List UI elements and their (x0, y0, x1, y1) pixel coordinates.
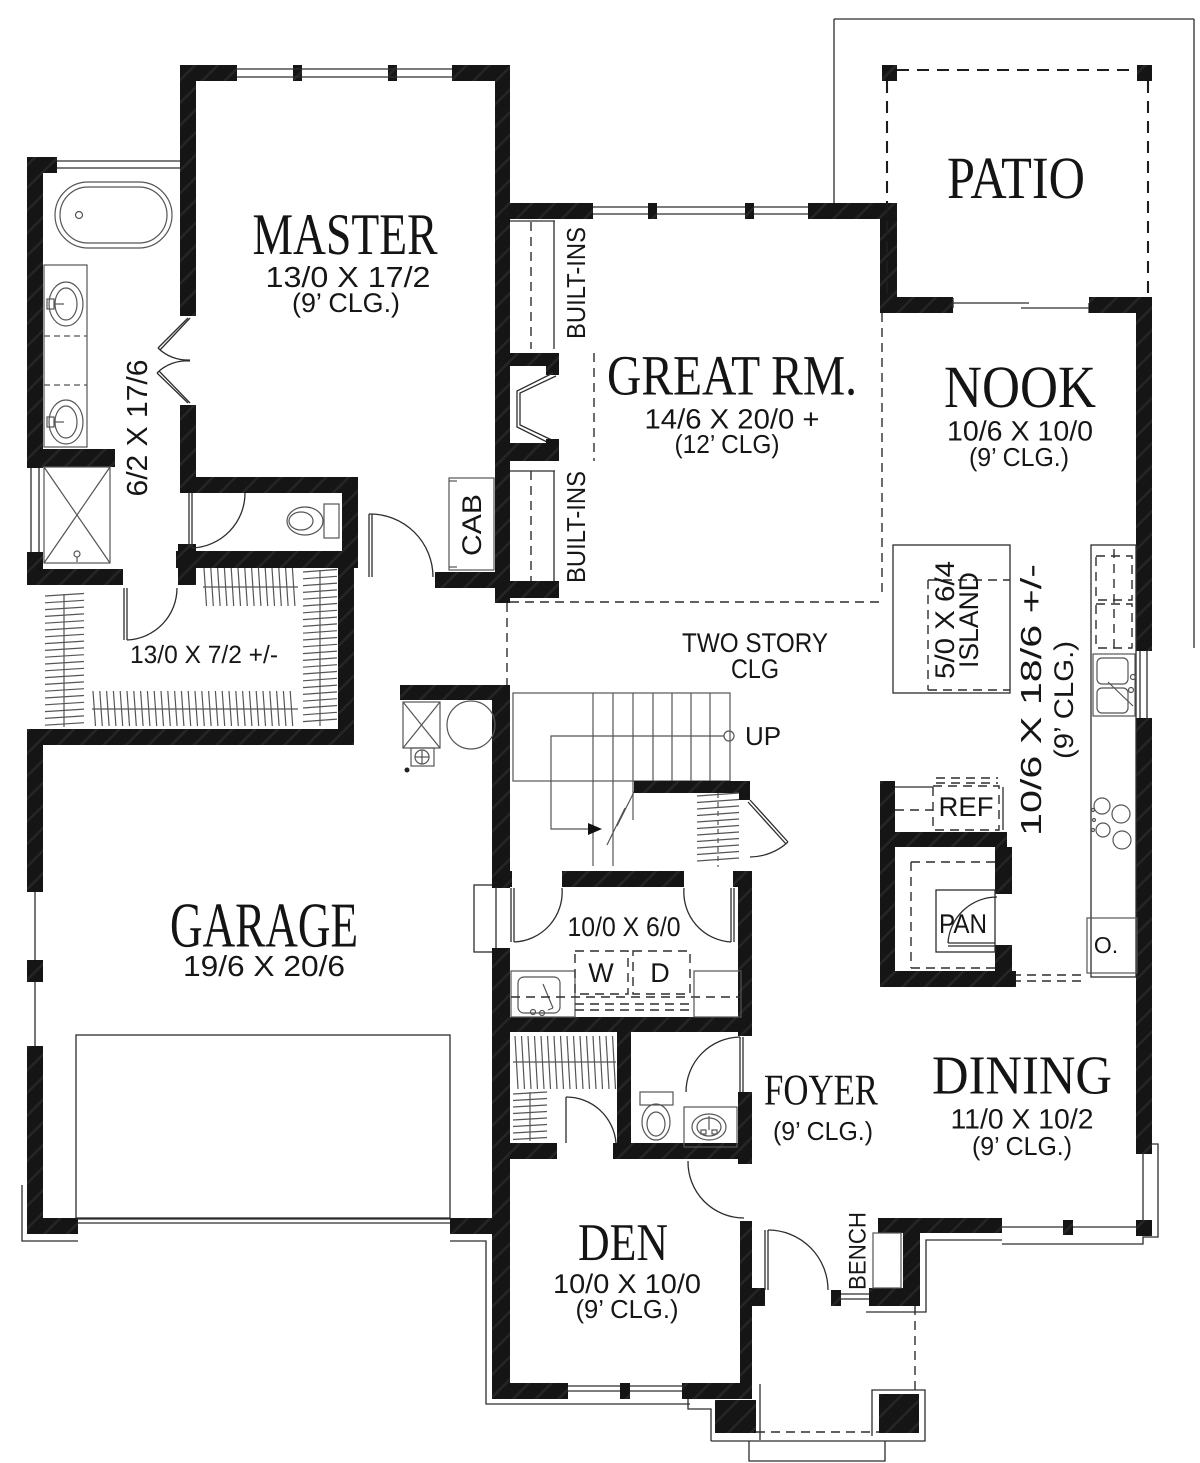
svg-text:NOOK: NOOK (944, 354, 1096, 420)
svg-text:GARAGE: GARAGE (170, 890, 358, 961)
svg-text:PAN: PAN (939, 909, 987, 939)
svg-text:GREAT RM.: GREAT RM. (607, 345, 857, 408)
svg-text:(9’ CLG.): (9’ CLG.) (972, 1131, 1072, 1161)
svg-text:CAB: CAB (457, 494, 487, 556)
svg-text:D: D (650, 958, 670, 988)
svg-text:W: W (588, 958, 614, 988)
svg-text:O.: O. (1094, 932, 1118, 958)
svg-text:BUILT-INS: BUILT-INS (561, 471, 591, 583)
svg-text:13/0 X 7/2 +/-: 13/0 X 7/2 +/- (130, 641, 278, 669)
svg-text:DINING: DINING (932, 1045, 1112, 1106)
svg-text:CLG: CLG (731, 654, 779, 684)
svg-text:REF: REF (939, 792, 994, 822)
svg-text:10/0 X 6/0: 10/0 X 6/0 (568, 912, 681, 942)
svg-text:6/2 X 17/6: 6/2 X 17/6 (122, 360, 154, 497)
svg-text:(9’ CLG.): (9’ CLG.) (773, 1116, 873, 1146)
svg-text:(12’ CLG): (12’ CLG) (675, 429, 780, 459)
svg-text:19/6 X 20/6: 19/6 X 20/6 (183, 951, 345, 983)
svg-text:UP: UP (745, 721, 781, 751)
svg-text:10/6 X 18/6 +/-: 10/6 X 18/6 +/- (1016, 564, 1048, 836)
svg-text:PATIO: PATIO (947, 145, 1085, 211)
svg-text:FOYER: FOYER (764, 1066, 879, 1115)
svg-text:ISLAND: ISLAND (954, 572, 984, 668)
svg-text:BUILT-INS: BUILT-INS (561, 227, 591, 339)
svg-text:(9’ CLG.): (9’ CLG.) (576, 1294, 679, 1324)
svg-text:(9’ CLG.): (9’ CLG.) (969, 442, 1069, 472)
svg-text:BENCH: BENCH (845, 1212, 872, 1290)
svg-text:11/0 X 10/2: 11/0 X 10/2 (951, 1104, 1094, 1135)
svg-text:DEN: DEN (578, 1214, 668, 1272)
svg-text:(9’ CLG.): (9’ CLG.) (292, 288, 400, 318)
svg-text:MASTER: MASTER (253, 201, 438, 267)
svg-text:(9’ CLG.): (9’ CLG.) (1049, 641, 1079, 759)
